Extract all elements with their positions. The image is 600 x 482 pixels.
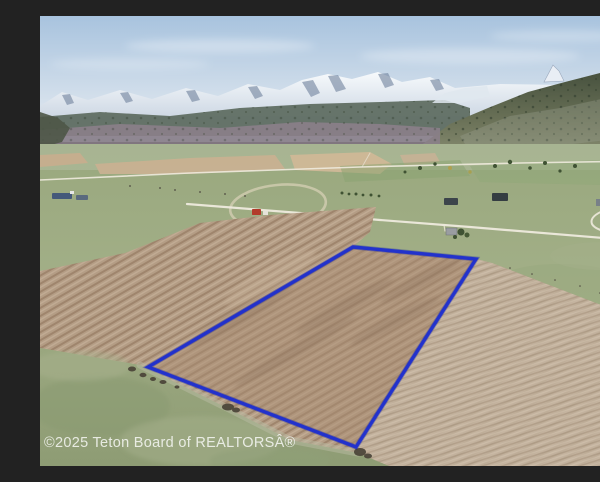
left-farm-shed-blue [52,193,72,199]
left-farm-house [70,191,74,194]
dark-barn-right [492,193,508,201]
dark-barn-mid [444,198,458,205]
listing-photo: ©2025 Teton Board of REALTORSÂ® [40,16,600,466]
red-barn [252,209,261,215]
white-shed [263,211,268,215]
watermark-text: ©2025 Teton Board of REALTORSÂ® [44,434,296,451]
left-farm-shed-gray [76,195,88,200]
aerial-photo-canvas: ©2025 Teton Board of REALTORSÂ® [40,16,600,466]
